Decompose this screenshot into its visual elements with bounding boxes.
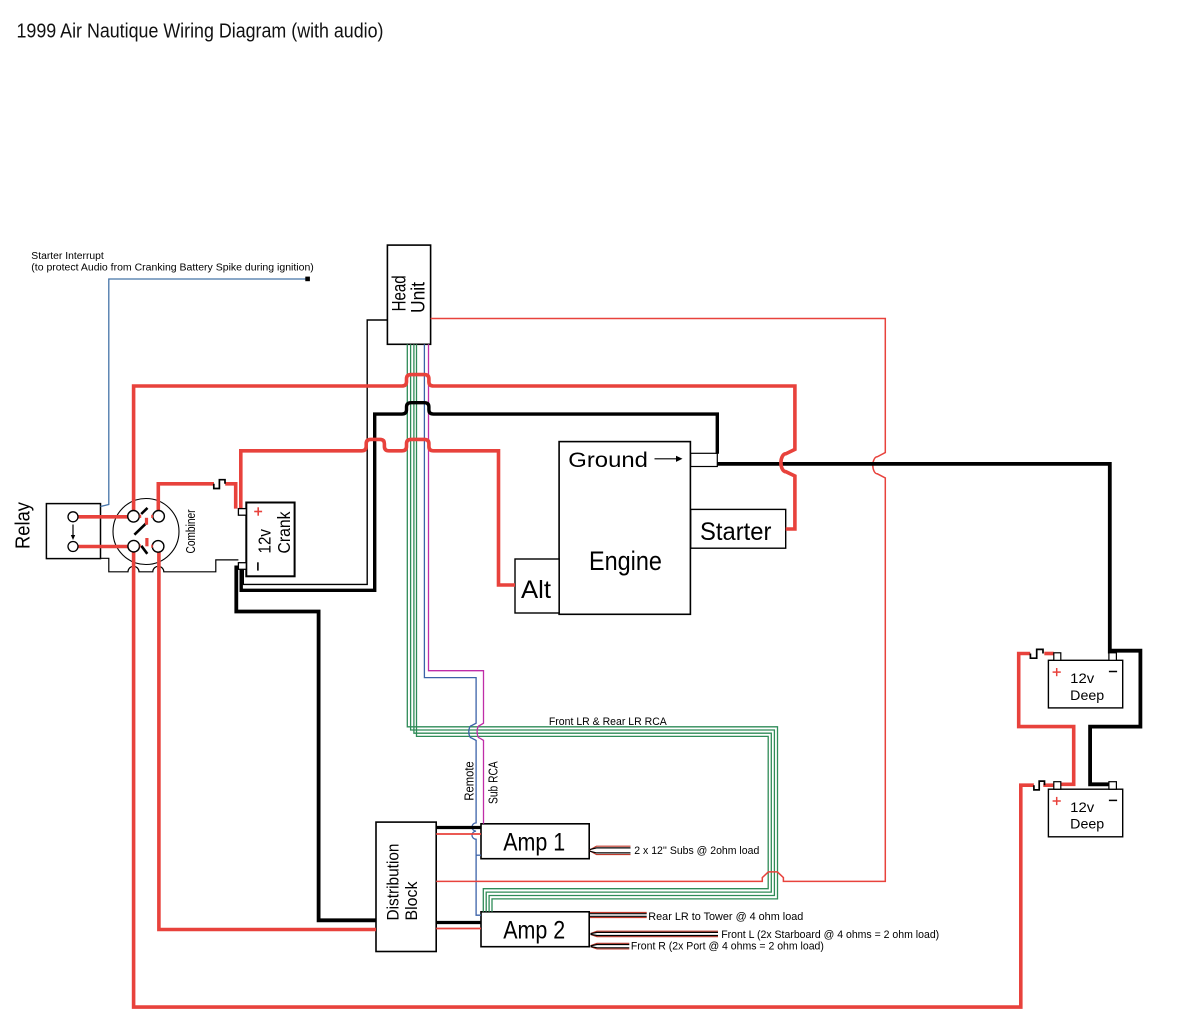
svg-text:Distribution: Distribution	[383, 844, 402, 921]
svg-text:Combiner: Combiner	[184, 510, 198, 554]
svg-text:Crank: Crank	[274, 511, 294, 553]
svg-text:2 x 12'' Subs @ 2ohm load: 2 x 12'' Subs @ 2ohm load	[634, 845, 759, 857]
svg-text:Starter Interrupt: Starter Interrupt	[31, 251, 104, 262]
svg-text:Sub RCA: Sub RCA	[487, 761, 501, 804]
svg-text:Front LR & Rear LR RCA: Front LR & Rear LR RCA	[549, 716, 668, 728]
svg-text:Deep: Deep	[1070, 687, 1104, 703]
svg-text:Alt: Alt	[521, 576, 551, 604]
svg-text:Head: Head	[389, 275, 410, 311]
svg-text:(to protect Audio from Crankin: (to protect Audio from Cranking Battery …	[31, 263, 314, 274]
svg-text:Remote: Remote	[463, 761, 477, 800]
svg-text:1999 Air Nautique Wiring Diagr: 1999 Air Nautique Wiring Diagram (with a…	[17, 21, 384, 43]
svg-text:Engine: Engine	[589, 546, 662, 576]
svg-text:12v: 12v	[254, 529, 274, 554]
svg-text:12v: 12v	[1070, 670, 1094, 686]
svg-text:Amp 1: Amp 1	[503, 829, 565, 857]
svg-text:Block: Block	[402, 881, 421, 920]
svg-text:12v: 12v	[1070, 799, 1094, 815]
svg-text:Unit: Unit	[409, 281, 430, 313]
svg-text:Amp 2: Amp 2	[503, 917, 565, 945]
svg-text:Rear LR to Tower @ 4 ohm load: Rear LR to Tower @ 4 ohm load	[648, 911, 803, 923]
svg-text:Starter: Starter	[700, 518, 771, 546]
svg-text:Front R (2x Port @ 4 ohms = 2: Front R (2x Port @ 4 ohms = 2 ohm load)	[631, 940, 824, 952]
svg-text:Deep: Deep	[1070, 816, 1104, 832]
svg-text:Ground: Ground	[568, 448, 648, 472]
svg-text:Relay: Relay	[13, 502, 35, 549]
